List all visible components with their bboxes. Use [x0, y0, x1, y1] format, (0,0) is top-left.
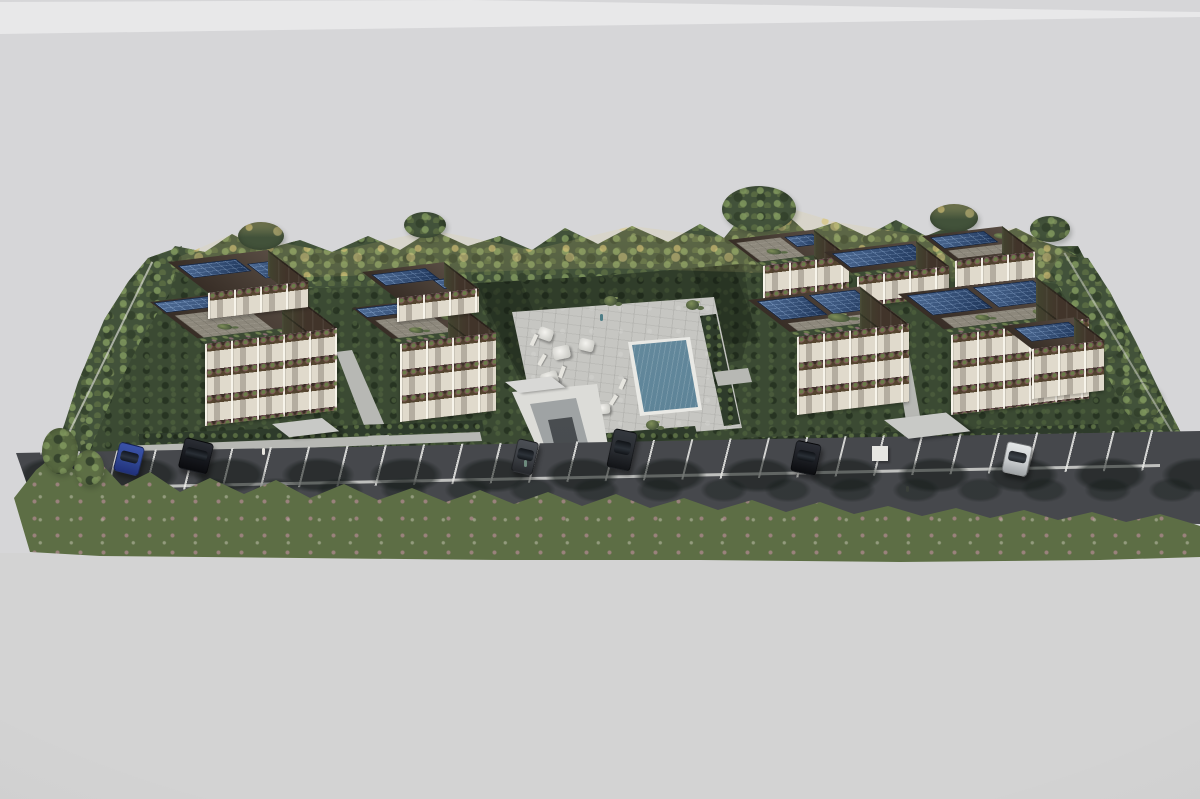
deck-shrub: [686, 300, 699, 310]
building-facade: [205, 328, 337, 426]
building-facade: [797, 324, 909, 415]
gate-kiosk: [872, 446, 888, 461]
corner-tree: [74, 450, 104, 486]
tree: [404, 212, 446, 238]
person: [906, 486, 909, 492]
person: [600, 314, 603, 321]
wing-facade: [1032, 341, 1104, 400]
architectural-rendering: [0, 0, 1200, 799]
tree: [930, 204, 978, 232]
building-facade: [400, 333, 496, 422]
deck-shrub: [646, 420, 659, 430]
tree: [238, 222, 284, 250]
solar-panel-array: [178, 259, 252, 278]
person: [524, 460, 527, 467]
corner-tree: [42, 428, 78, 474]
tall-tree: [722, 186, 796, 232]
tree: [1122, 382, 1162, 420]
person: [262, 448, 265, 455]
foreground-ground: [0, 553, 1200, 799]
tree: [1030, 216, 1070, 242]
deck-shrub: [604, 296, 617, 306]
solar-panel-array: [371, 268, 439, 285]
